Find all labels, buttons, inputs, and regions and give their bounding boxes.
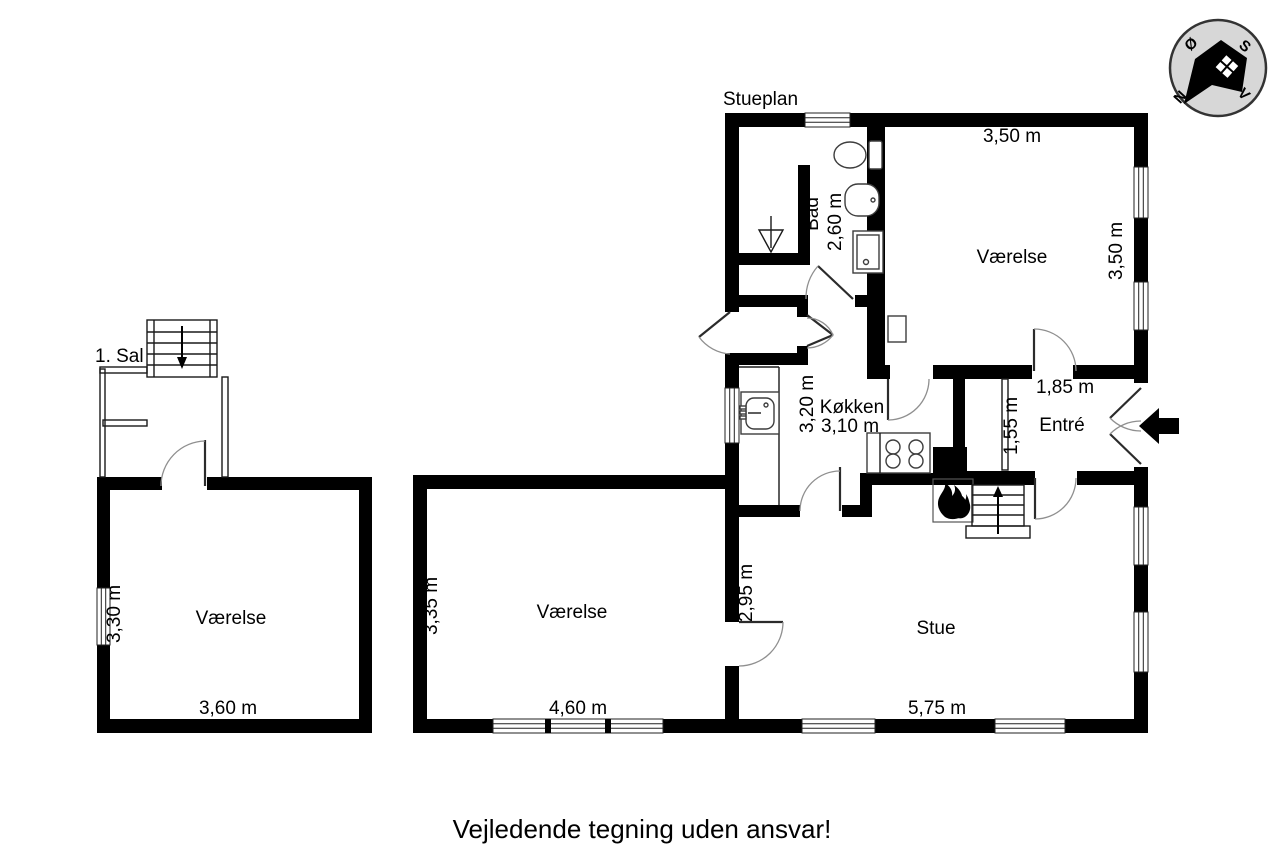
- disclaimer-text: Vejledende tegning uden ansvar!: [453, 814, 832, 844]
- window-bedroom-ne-east-1: [1134, 167, 1148, 218]
- window-bath-north: [805, 113, 850, 127]
- dim-bedroom-mid-depth: 3,35 m: [421, 577, 442, 635]
- window-living-south-2: [995, 719, 1065, 733]
- dim-bath: 2,60 m: [825, 193, 846, 251]
- window-bedroom-ne-east-2: [1134, 282, 1148, 330]
- plan-title: Stueplan: [723, 89, 798, 110]
- room-label-bedroom-mid: Værelse: [537, 602, 608, 623]
- room-label-kitchen: Køkken: [820, 397, 884, 418]
- dim-living-partition: 2,95 m: [736, 564, 757, 622]
- room-label-bedroom-annex: Værelse: [196, 608, 267, 629]
- toilet-icon: [834, 141, 882, 169]
- room-label-living: Stue: [916, 618, 955, 639]
- door-entry-bedroom-ne: [1034, 329, 1076, 371]
- room-label-bedroom-ne: Værelse: [977, 247, 1048, 268]
- door-entry-living: [1035, 478, 1076, 519]
- kitchen-sink-icon: [740, 392, 779, 434]
- window-kitchen-west: [725, 388, 739, 443]
- dim-living-width: 5,75 m: [908, 698, 966, 719]
- fireplace-icon: [933, 479, 973, 522]
- door-bath: [806, 266, 853, 299]
- door-entrance-double: [1110, 388, 1141, 464]
- room-label-bath: Bad: [802, 197, 823, 231]
- door-hall-kitchen-double: [807, 315, 833, 348]
- door-bedroom-mid-living: [739, 622, 783, 666]
- room-label-entry: Entré: [1039, 415, 1084, 436]
- dim-bedroom-ne-right: 3,50 m: [1106, 222, 1127, 280]
- dim-bedroom-annex-width: 3,60 m: [199, 698, 257, 719]
- window-living-east-1: [1134, 507, 1148, 565]
- radiator: [888, 316, 906, 342]
- window-bedroom-mid-south: [493, 719, 663, 733]
- entrance-arrow: [1139, 408, 1179, 444]
- floor-plan-drawing: Ø S N V Stueplan Vejledende tegning uden…: [0, 0, 1280, 853]
- dim-bedroom-annex-depth: 3,30 m: [104, 585, 125, 643]
- stairs-annex: [100, 320, 228, 477]
- window-living-east-2: [1134, 612, 1148, 672]
- shower-icon: [853, 231, 883, 273]
- windows: [97, 113, 1148, 733]
- stove-icon: [867, 433, 930, 473]
- dim-bedroom-ne-top: 3,50 m: [983, 126, 1041, 147]
- dim-entry-depth: 1,55 m: [1001, 397, 1022, 455]
- window-living-south-1: [802, 719, 875, 733]
- upper-floor-label: 1. Sal: [95, 346, 144, 367]
- doors: [161, 266, 1141, 666]
- compass: Ø S N V: [1170, 20, 1266, 116]
- door-exterior-west: [699, 312, 730, 354]
- walls: [97, 113, 1148, 733]
- dim-entry-width: 1,85 m: [1036, 377, 1094, 398]
- cupboard-symbol: [759, 216, 783, 252]
- bath-sink-icon: [845, 184, 879, 216]
- door-annex-room: [161, 440, 205, 486]
- floor-plan-page: Ø S N V Stueplan Vejledende tegning uden…: [0, 0, 1280, 853]
- dim-bedroom-mid-width: 4,60 m: [549, 698, 607, 719]
- door-kitchen-bedroom-ne: [888, 379, 929, 420]
- dim-kitchen-width: 3,10 m: [821, 416, 879, 437]
- kitchen-counter: [739, 367, 779, 505]
- dim-kitchen-depth: 3,20 m: [797, 375, 818, 433]
- door-kitchen-living: [800, 467, 840, 511]
